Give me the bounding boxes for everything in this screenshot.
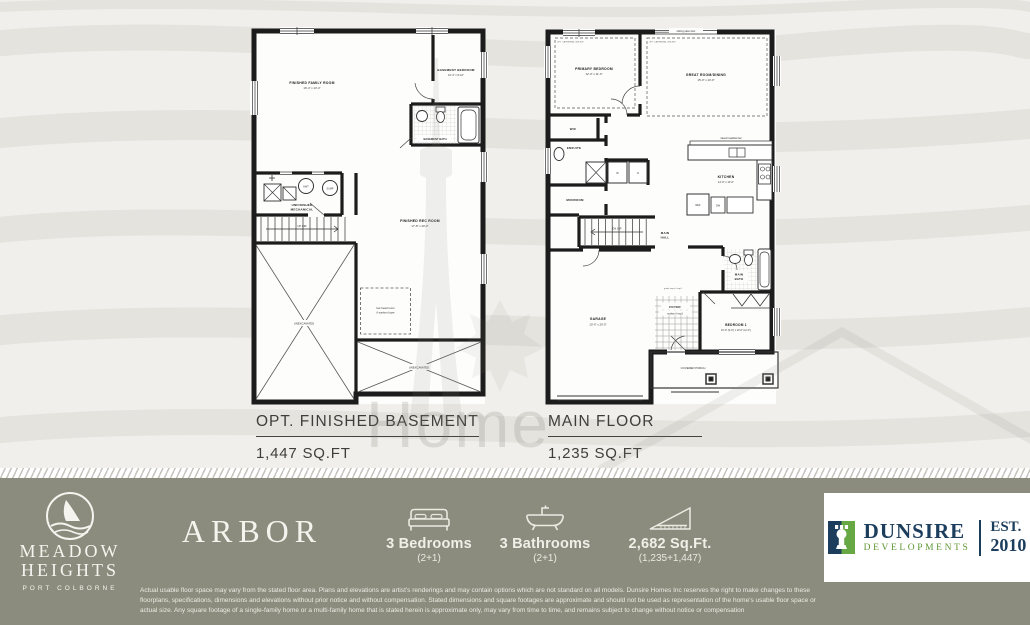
mudroom-label: MUDROOM: [566, 198, 584, 202]
meadow-heights-emblem: [14, 490, 126, 542]
main-bath-label-1: MAIN: [735, 273, 743, 277]
low-head-label-2: if sunken foyer: [376, 311, 394, 315]
patio-door-label: sliding patio door: [677, 30, 696, 33]
sump-label: SUMP: [327, 187, 334, 190]
basement-bath-label: BASEMENT BATH: [423, 137, 446, 141]
bedrooms-sub: (2+1): [382, 553, 476, 564]
primary-bedroom-label: PRIMARY BEDROOM: [575, 67, 613, 71]
main-stairs-label: DN 14R: [613, 228, 622, 231]
sqft-icon: [614, 502, 726, 532]
dunsire-divider: [979, 520, 981, 556]
primary-cathedral-note: OPT. CATHEDRAL CEILING: [557, 41, 584, 44]
rec-room-dims: 17'-8" x 20'-0": [411, 224, 428, 228]
hwt-label: HWT: [303, 185, 309, 188]
basement-area: 1,447 SQ.FT: [256, 445, 479, 462]
meadow-heights-logo: MEADOW HEIGHTS PORT COLBORNE: [14, 490, 126, 592]
laundry-units: [608, 162, 647, 183]
family-room-label: FINISHED FAMILY ROOM: [289, 81, 334, 85]
foyer-steps-note: grade steps if req'd: [664, 287, 682, 290]
bedroom1-dims: 10'-0" (9'-0") x 10'-0" (11'-4"): [721, 329, 751, 332]
wavy-background: [0, 0, 1030, 470]
ensuite-label: ENSUITE: [567, 146, 581, 150]
foyer-sub-label: sunken if req'd: [667, 313, 683, 316]
bathrooms-stat: 3 Bathrooms (2+1): [496, 502, 594, 564]
bedrooms-stat: 3 Bedrooms (2+1): [382, 502, 476, 564]
mech-label-1: UNFINISHED: [292, 203, 313, 207]
wic-label: WIC: [570, 127, 577, 131]
unexcavated-left-label: UNEXCAVATED: [294, 322, 314, 326]
dunsire-year: 2010: [990, 536, 1026, 555]
main-floor-area: 1,235 SQ.FT: [548, 445, 702, 462]
primary-bedroom-dims: 12'-0" x 11'-0": [586, 72, 603, 76]
mech-label-2: MECHANICAL: [291, 208, 314, 212]
sqft-label: 2,682 Sq.Ft.: [614, 536, 726, 552]
brand-line-2: HEIGHTS: [14, 561, 126, 580]
sail-icon: [64, 500, 80, 521]
garage-label: GARAGE: [590, 317, 607, 321]
sqft-sub: (1,235+1,447): [614, 553, 726, 564]
dunsire-est: EST.: [990, 520, 1026, 536]
bathrooms-label: 3 Bathrooms: [496, 536, 594, 552]
hatched-divider: [0, 468, 1030, 478]
basement-caption: OPT. FINISHED BASEMENT 1,447 SQ.FT: [256, 413, 479, 462]
main-floor-title: MAIN FLOOR: [548, 413, 702, 437]
great-cathedral-note: OPT. CATHEDRAL CEILING: [649, 41, 676, 44]
dunsire-division: DEVELOPMENTS: [864, 544, 971, 554]
family-room-dims: 16'-4" x 13'-4": [303, 86, 320, 90]
dunsire-logo-card: DUNSIRE DEVELOPMENTS EST. 2010: [824, 493, 1030, 582]
basement-stairs-label: UP 14R: [297, 224, 306, 228]
dunsire-rook-icon: [828, 521, 855, 554]
dunsire-name: DUNSIRE: [864, 521, 971, 542]
brand-line-1: MEADOW: [14, 542, 126, 561]
bed-icon: [382, 502, 476, 532]
floorplan-flyer: UP 14R BASEMENT BATH HWT SUMP UNFINISHED…: [0, 0, 1030, 625]
unexcavated-right-label: UNEXCAVATED: [409, 366, 429, 370]
great-room-label: GREAT ROOM/DINING: [686, 73, 726, 77]
rec-room-label: FINISHED REC ROOM: [400, 219, 440, 223]
main-floor-caption: MAIN FLOOR 1,235 SQ.FT: [548, 413, 702, 462]
main-bath-label-2: BATH: [735, 277, 744, 281]
kitchen-dims: 12'-0" x 12'-0": [718, 180, 734, 184]
bedroom1-label: BEDROOM 1: [725, 323, 747, 327]
main-hall-label-1: MAIN: [661, 231, 669, 235]
main-floorplan: OPT. CATHEDRAL CEILING OPT. CATHEDRAL CE…: [543, 28, 791, 406]
low-head-label-1: low head room: [376, 306, 395, 310]
bath-icon: [496, 502, 594, 532]
breakfast-bar-label: raised breakfast bar: [720, 137, 741, 140]
main-bath-fixtures: [724, 249, 771, 290]
disclaimer-text: Actual usable floor space may vary from …: [140, 586, 818, 615]
brand-subtitle: PORT COLBORNE: [14, 585, 126, 592]
foyer-label: FOYER: [669, 305, 681, 309]
basement-bedroom-label: BASEMENT BEDROOM: [437, 68, 475, 72]
sqft-stat: 2,682 Sq.Ft. (1,235+1,447): [614, 502, 726, 564]
basement-bedroom-dims: 10'-4" x 9'-10": [448, 73, 464, 77]
bedrooms-label: 3 Bedrooms: [382, 536, 476, 552]
porch-label: COVERED PORCH: [681, 366, 706, 370]
basement-title: OPT. FINISHED BASEMENT: [256, 413, 479, 437]
kitchen-label: KITCHEN: [718, 175, 735, 179]
ref-label: REF: [696, 204, 701, 207]
basement-floorplan: UP 14R BASEMENT BATH HWT SUMP UNFINISHED…: [250, 26, 488, 408]
model-name: ARBOR: [168, 513, 336, 550]
bathrooms-sub: (2+1): [496, 553, 594, 564]
great-room-dims: 15'-0" x 13'-0": [697, 78, 714, 82]
main-hall-label-2: HALL: [661, 236, 670, 240]
dryer-label: D: [637, 171, 639, 175]
garage-dims: 10'-0" x 20'-0": [589, 323, 606, 327]
